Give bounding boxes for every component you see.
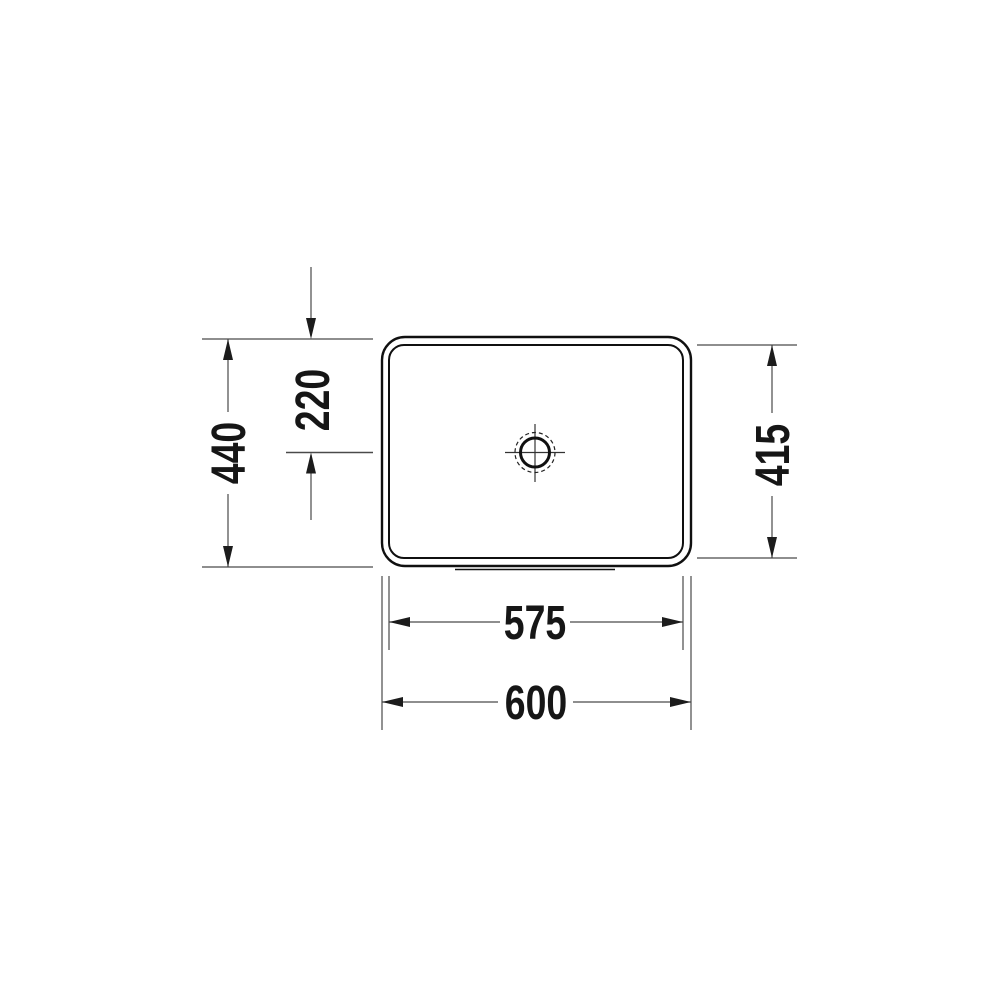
dimension-label-inner-width: 575: [504, 597, 566, 651]
dimension-inner-width: 575: [389, 597, 683, 651]
dimension-label-overall-depth: 440: [203, 422, 257, 484]
dimension-overall-width: 600: [382, 677, 691, 731]
dimension-drain-offset: 220: [286, 267, 373, 520]
drawing-canvas: 440 220 415: [0, 0, 1000, 1000]
washbasin-dimension-drawing: 440 220 415: [0, 0, 1000, 1000]
arrow-up-icon: [306, 453, 316, 474]
arrow-right-icon: [670, 697, 691, 707]
arrow-right-icon: [662, 617, 683, 627]
arrow-down-icon: [767, 537, 777, 558]
arrow-down-icon: [306, 318, 316, 339]
arrow-down-icon: [223, 546, 233, 567]
arrow-up-icon: [223, 339, 233, 360]
dimension-inner-depth: 415: [697, 345, 800, 558]
dimension-label-overall-width: 600: [505, 677, 567, 731]
basin-outline: [382, 337, 691, 570]
arrow-left-icon: [389, 617, 410, 627]
arrow-up-icon: [767, 345, 777, 366]
dimension-label-inner-depth: 415: [747, 424, 801, 486]
dimension-label-drain-offset: 220: [287, 369, 341, 431]
basin-outer-rim: [382, 337, 691, 566]
arrow-left-icon: [382, 697, 403, 707]
